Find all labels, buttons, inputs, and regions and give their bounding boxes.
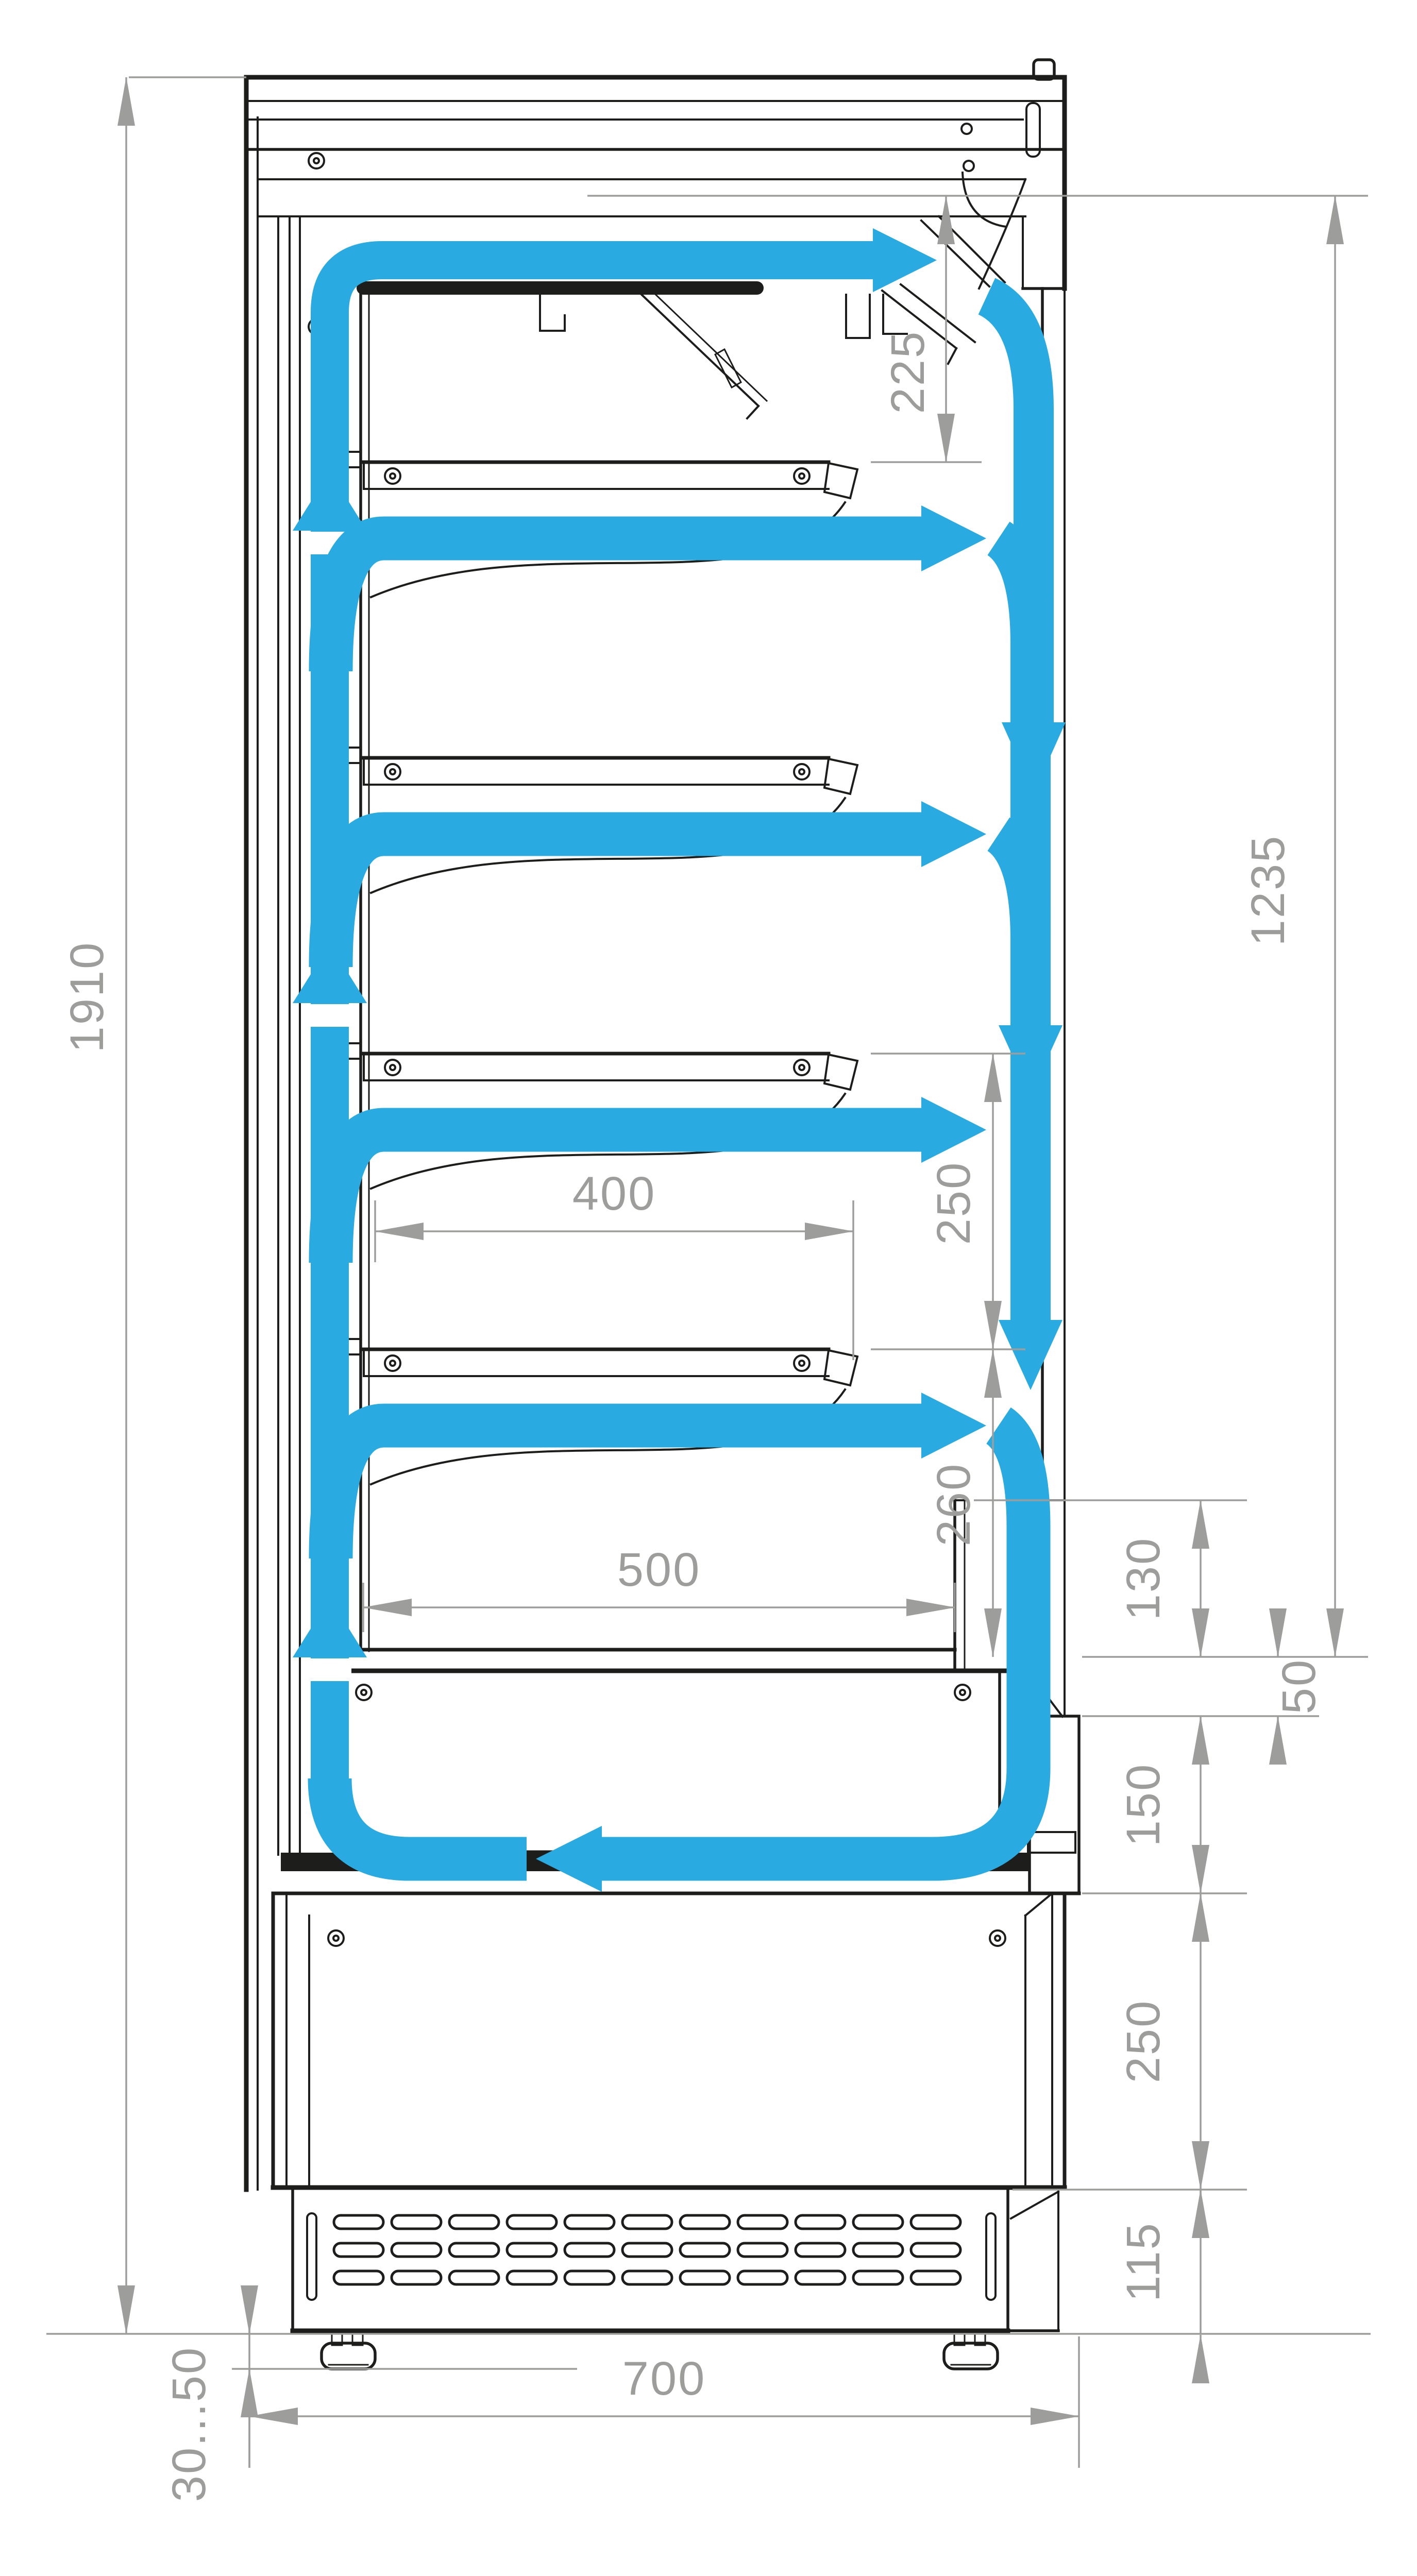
airflow-arrowhead-left [536, 1826, 602, 1892]
shelf-2 [344, 748, 857, 794]
dim-below-shelf: 260 [927, 1349, 993, 1657]
louvre-slot [738, 2243, 787, 2257]
dim-foot-height: 30...50 [163, 2293, 249, 2502]
airflow-shelf-band-1 [331, 538, 921, 671]
dim-front-50: 50 [1273, 1616, 1325, 1757]
louvre-slot [507, 2243, 556, 2257]
dim-front-130: 130 [1117, 1500, 1201, 1657]
dim-label: 225 [882, 330, 934, 414]
airflow-arrowhead-down [999, 1320, 1062, 1390]
adjustable-foot-right [944, 2331, 998, 2369]
dim-well-depth: 500 [363, 1544, 955, 1607]
dim-height-overall: 1910 [61, 77, 126, 2334]
airflow-return-elbow [330, 1778, 527, 1859]
louvre-slot [507, 2271, 556, 2284]
airflow-shelf-band-2 [331, 834, 921, 967]
airflow-curtain-arc-2 [999, 834, 1031, 1320]
air-deflector [638, 286, 767, 418]
fascia-hole [961, 124, 972, 134]
dim-label: 250 [927, 1161, 980, 1245]
louvre-slot [738, 2271, 787, 2284]
louvre-slot [449, 2243, 499, 2257]
cabinet-airflow-section-diagram: 1910 30...50 700 225 1235 400 [0, 0, 1417, 2576]
discharge-bracket [963, 173, 1006, 227]
louvre-slot [334, 2215, 383, 2229]
louvre-slot [738, 2215, 787, 2229]
louvre-slot [680, 2271, 730, 2284]
dim-label: 115 [1117, 2222, 1170, 2302]
dim-label: 150 [1117, 1763, 1170, 1847]
airflow-arrowhead-right [873, 228, 937, 292]
dim-label: 30...50 [163, 2346, 215, 2502]
shelf-3 [344, 1043, 857, 1090]
dim-label: 700 [622, 2352, 706, 2405]
dim-front-150: 150 [1117, 1716, 1201, 1893]
louvre-slot [622, 2243, 672, 2257]
dim-label: 130 [1117, 1537, 1170, 1621]
louvre-slot [911, 2243, 960, 2257]
louvre-slot [334, 2243, 383, 2257]
dim-label: 50 [1273, 1658, 1325, 1714]
louvre-slot [449, 2215, 499, 2229]
dim-label: 1910 [61, 941, 113, 1053]
louvre-slot [392, 2271, 441, 2284]
airflow-arrowhead-right [921, 1393, 986, 1459]
louvre-slot [796, 2271, 845, 2284]
louvre-slot [680, 2243, 730, 2257]
louvre-slot [796, 2215, 845, 2229]
airflow-arrowhead-up [293, 1598, 367, 1657]
adjustable-foot-left [322, 2331, 375, 2369]
plinth-handle-slot [307, 2213, 316, 2300]
louvre-slot [622, 2271, 672, 2284]
dim-plinth-height: 115 [1117, 2190, 1201, 2378]
dim-label: 500 [617, 1544, 701, 1596]
dim-label: 260 [927, 1463, 980, 1547]
airflow [293, 228, 1066, 1892]
louvre-slot [449, 2271, 499, 2284]
bottom-basin [334, 1500, 1075, 1853]
louvre-slot [680, 2215, 730, 2229]
airflow-arrowhead-right [921, 801, 986, 867]
dim-label: 1235 [1242, 835, 1294, 946]
louvre-slot [622, 2215, 672, 2229]
dim-inner-height: 1235 [1242, 196, 1335, 1657]
shelf-1 [344, 452, 857, 498]
louvre-slot [334, 2271, 383, 2284]
louvre-slot [507, 2215, 556, 2229]
hook [540, 295, 565, 331]
vented-plinth [293, 2191, 1058, 2331]
louvre-slot [853, 2243, 903, 2257]
louvre-slot [392, 2215, 441, 2229]
shelf-4 [344, 1339, 857, 1385]
machine-compartment [273, 1893, 1065, 2188]
louvre-slot [565, 2243, 614, 2257]
ceiling-light-housing [357, 281, 764, 295]
fascia-hole [964, 161, 974, 171]
louvre-slot [796, 2243, 845, 2257]
louvre-slot [392, 2243, 441, 2257]
louvre-slot [853, 2271, 903, 2284]
dim-base-height: 250 [1117, 1893, 1201, 2190]
shelves [344, 452, 857, 1484]
hook [846, 295, 870, 338]
airflow-arrowhead-up [293, 471, 367, 531]
airflow-arrowhead-right [921, 1097, 986, 1163]
plinth-handle-slot [986, 2213, 996, 2300]
dim-label: 250 [1117, 1999, 1170, 2083]
louvre-slot [911, 2215, 960, 2229]
louvre-slot [565, 2271, 614, 2284]
louvre-slot [853, 2215, 903, 2229]
airflow-shelf-band-4 [331, 1426, 921, 1558]
dim-shelf-pitch: 250 [927, 1054, 993, 1349]
airflow-arrowhead-right [921, 505, 986, 571]
louvre-slot [565, 2215, 614, 2229]
dim-shelf-depth: 400 [375, 1167, 853, 1231]
plinth-louvres [334, 2215, 960, 2284]
louvre-slot [911, 2271, 960, 2284]
dim-label: 400 [572, 1167, 656, 1220]
